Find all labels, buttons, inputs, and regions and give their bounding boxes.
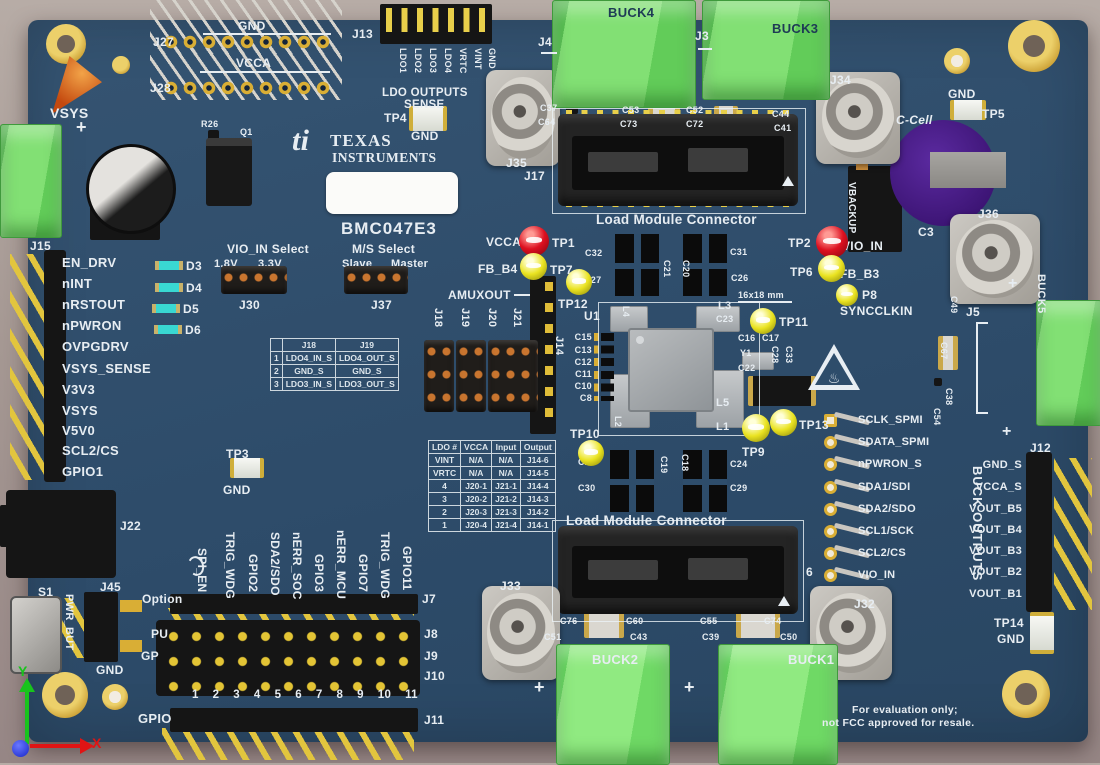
axes-origin-dot (12, 740, 29, 757)
pin-number: 10 (378, 690, 391, 704)
silk-j45-gnd: GND (96, 664, 124, 676)
gpio-signal: TRIG_WDG (379, 532, 391, 599)
j15-signal: nPWRON (62, 319, 122, 332)
table-header: LDO # (429, 441, 461, 454)
tp-label: nPWRON_S (858, 458, 922, 470)
silk-buck4: BUCK4 (608, 6, 654, 19)
j20-j21-header (488, 340, 538, 412)
silk-c54: C54 (932, 408, 941, 425)
silk-c72: C72 (686, 120, 703, 129)
silk-c44: C44 (772, 110, 789, 119)
tp10-test-point (578, 440, 604, 466)
silk-pwr-but: PWR_BUT (63, 594, 74, 651)
silk-fb-b3: FB_B3 (840, 268, 880, 280)
silk-c49: C49 (949, 296, 958, 313)
table-header: J18 (282, 339, 335, 352)
silk-c50: C50 (780, 633, 797, 642)
silk-c17: C17 (762, 334, 779, 343)
tp12-test-point (566, 269, 592, 295)
j18-header (424, 340, 454, 412)
coax-rings (956, 220, 1033, 297)
silk-buck2: BUCK2 (592, 653, 638, 666)
silk-c43: C43 (630, 633, 647, 642)
j45-pad (120, 640, 142, 652)
ms-select-title: M/S Select (352, 243, 415, 255)
silk-c11: C11 (570, 370, 592, 379)
silk-j4: J4 (538, 36, 552, 48)
silk-tp3-gnd: GND (223, 484, 251, 496)
silk-j9: J9 (424, 650, 438, 662)
silk-c41: C41 (774, 124, 791, 133)
board-id: BMC047E3 (341, 220, 437, 237)
tp1-test-point (519, 226, 549, 256)
table-cell: 4 (429, 480, 461, 493)
silk-c51: C51 (544, 633, 561, 642)
ti-logo-icon: ti (292, 126, 309, 156)
silk-c76: C76 (560, 617, 577, 626)
table-header: VCCA (461, 441, 492, 454)
pin1-triangle (778, 596, 790, 606)
silk-c12: C12 (570, 358, 592, 367)
x-axis-line (30, 744, 82, 748)
silk-c24: C24 (730, 460, 747, 469)
silk-j6: 6 (806, 566, 813, 578)
silk-tp9: TP9 (742, 446, 765, 458)
mount-hole-bottom-right (1002, 670, 1050, 718)
j13-pin-label: VINT (473, 48, 482, 70)
silk-j14: J14 (553, 336, 564, 355)
j13-header-pins (386, 8, 486, 32)
silk-c53: C53 (622, 106, 639, 115)
silk-c52: C52 (686, 106, 703, 115)
silk-load-module-bottom: Load Module Connector (566, 514, 727, 528)
p8-test-point (836, 284, 858, 306)
silk-plus: + (76, 118, 87, 136)
silk-line (203, 33, 331, 35)
silk-gpio: GPIO (138, 712, 172, 725)
silk-j19: J19 (459, 308, 470, 327)
gpio-signal: SPI_EN (196, 548, 208, 593)
j12-pin-label: VOUT_B2 (969, 567, 1022, 578)
silk-j17: J17 (524, 170, 545, 182)
fiducial-bottom-left (102, 684, 128, 710)
j15-signal: V3V3 (62, 383, 95, 396)
table-cell: N/A (461, 467, 492, 480)
j28-pads (162, 76, 332, 100)
silk-j34: J34 (830, 74, 851, 86)
j15-signal: nRSTOUT (62, 298, 125, 311)
silk-c74: C74 (764, 617, 781, 626)
y-axis-label: Y (18, 664, 28, 678)
silk-c67: C67 (939, 342, 948, 359)
silk-plus: + (1008, 276, 1018, 292)
silk-line (514, 294, 530, 296)
tp3-test-pad (230, 458, 264, 478)
pin-number: 3 (233, 690, 240, 704)
silk-line (200, 71, 330, 73)
table-cell: LDO4_IN_S (282, 352, 335, 365)
silk-c32: C32 (585, 249, 602, 258)
buck5-terminal (1036, 300, 1100, 426)
silk-plus: + (1002, 424, 1012, 440)
table-header: Input (492, 441, 521, 454)
silk-tp11: TP11 (779, 316, 808, 328)
table-cell: VRTC (429, 467, 461, 480)
silk-j22: J22 (120, 520, 141, 532)
silk-c13: C13 (570, 346, 592, 355)
y-axis-arrowhead (19, 678, 35, 692)
tp2-test-point (816, 226, 848, 258)
silk-j27: J27 (153, 36, 174, 48)
silk-j32: J32 (854, 598, 875, 610)
led-d5 (152, 304, 180, 313)
table-header (271, 339, 283, 352)
silk-r26: R26 (201, 120, 218, 129)
silk-l2: L2 (613, 416, 622, 427)
silk-c15: C15 (570, 333, 592, 342)
tp-label: SCLK_SPMI (858, 414, 923, 426)
smd (934, 378, 942, 386)
table-header: J19 (336, 339, 399, 352)
silk-c16: C16 (738, 334, 755, 343)
table-cell: N/A (492, 454, 521, 467)
pin-number: 11 (405, 690, 418, 704)
silk-vbackup: VBACKUP (846, 182, 856, 234)
silk-l5: L5 (716, 398, 729, 409)
silk-c26: C26 (731, 274, 748, 283)
silk-fb-b4: FB_B4 (478, 263, 518, 275)
tp-label: SCL2/CS (858, 547, 906, 559)
j15-pins (10, 254, 44, 480)
battery-clip (930, 152, 1006, 188)
table-cell: GND_S (336, 365, 399, 378)
table-cell: 3 (429, 493, 461, 506)
table-cell: J20-3 (461, 506, 492, 519)
silk-gnd-tp5: GND (948, 88, 976, 100)
silk-j7: J7 (422, 593, 436, 605)
silk-j10: J10 (424, 670, 445, 682)
table-cell: J14-5 (520, 467, 555, 480)
table-cell: 1 (271, 352, 283, 365)
silk-c21: C21 (662, 260, 671, 277)
table-cell: J20-4 (461, 519, 492, 532)
silk-c-cell: C-Cell (896, 114, 932, 126)
table-cell: J14-2 (520, 506, 555, 519)
gpio-signal: SDA2/SDO (269, 532, 281, 596)
j15-signal: GPIO1 (62, 465, 103, 478)
coax-rings (822, 78, 894, 157)
j45-header (84, 592, 118, 662)
j12-pin-label: VCCA_S (976, 482, 1022, 493)
j5-bracket-tick (976, 412, 988, 414)
cap-cluster (615, 234, 659, 296)
vsys-terminal (0, 124, 62, 238)
table-cell: VINT (429, 454, 461, 467)
j12-pin-label: VOUT_B5 (969, 504, 1022, 515)
led-label: D6 (185, 324, 201, 336)
j12-pin-label: VOUT_B1 (969, 589, 1022, 600)
table-cell: N/A (461, 454, 492, 467)
bulk-electrolytic-cap (86, 144, 176, 234)
silk-tp4-gnd: GND (411, 130, 439, 142)
silk-j28: J28 (150, 82, 171, 94)
silk-tp13: TP13 (799, 419, 829, 431)
silk-l3: L3 (718, 301, 731, 312)
j14-pads (545, 282, 553, 428)
silk-gnd-top: GND (238, 20, 266, 32)
j5-bracket-tick (976, 322, 988, 324)
silk-q1: Q1 (240, 128, 253, 137)
tp14-test-pad (1030, 612, 1054, 654)
table-cell: J20-1 (461, 480, 492, 493)
gpio-signal: GPIO7 (357, 554, 369, 592)
pin-number: 4 (254, 690, 261, 704)
pin-number-row: 1 2 3 4 5 6 7 8 9 10 11 (192, 690, 418, 704)
silk-c23: C23 (716, 315, 733, 324)
silk-plus: + (684, 678, 695, 696)
led-label: D3 (186, 260, 202, 272)
tp7-test-point (520, 253, 547, 280)
table-cell: LDO3_OUT_S (336, 378, 399, 391)
table-cell: J14-3 (520, 493, 555, 506)
j13-pin-label: GND (487, 48, 496, 69)
j30-jumper (221, 266, 287, 294)
table-cell: 3 (271, 378, 283, 391)
j12-header (1026, 452, 1052, 612)
table-cell: J21-1 (492, 480, 521, 493)
cap-cluster (610, 450, 654, 512)
table-cell: N/A (492, 467, 521, 480)
buck3-terminal (702, 0, 830, 100)
silk-tp6: TP6 (790, 266, 813, 278)
j11-pins (162, 728, 414, 760)
j36-coax-connector (950, 214, 1040, 304)
silk-c29: C29 (730, 484, 747, 493)
silk-c64: C64 (538, 118, 555, 127)
silk-c3: C3 (918, 226, 934, 238)
silk-j30: J30 (239, 299, 260, 311)
silk-c20: C20 (681, 260, 690, 277)
silk-syncclkin: SYNCCLKIN (840, 305, 913, 317)
led-label: D5 (183, 303, 199, 315)
silk-c8: C8 (572, 394, 592, 403)
silk-c18: C18 (680, 454, 689, 471)
silk-pu: PU (151, 628, 168, 640)
j15-signal: OVPGDRV (62, 340, 129, 353)
silk-s1: S1 (38, 586, 53, 598)
table-header: Output (520, 441, 555, 454)
silk-buck1: BUCK1 (788, 653, 834, 666)
silk-ldo-outputs: LDO OUTPUTS (382, 88, 468, 100)
silk-tp10: TP10 (570, 428, 600, 440)
j13-pin-label: LDO1 (398, 48, 407, 73)
silk-j20: J20 (486, 308, 497, 327)
pin-number: 1 (192, 690, 199, 704)
silk-buck3: BUCK3 (772, 22, 818, 35)
table-cell: J21-3 (492, 506, 521, 519)
hole-bore (951, 55, 962, 66)
table-cell: J21-4 (492, 519, 521, 532)
silk-tp14: TP14 (994, 617, 1024, 629)
pin-number: 2 (213, 690, 220, 704)
pin-number: 5 (275, 690, 282, 704)
silk-sense: SENSE (404, 100, 445, 112)
silk-j11: J11 (424, 714, 444, 726)
silk-l4: L4 (621, 306, 630, 317)
fiducial-top-left (112, 56, 130, 74)
silk-l1: L1 (716, 422, 729, 433)
pin-number: 6 (295, 690, 302, 704)
tp-label: SDA2/SDO (858, 503, 916, 515)
silk-c38: C38 (944, 388, 953, 405)
silk-vio-in-tp2: VIO_IN (842, 240, 883, 252)
silk-c55: C55 (700, 617, 717, 626)
pin-number: 8 (336, 690, 343, 704)
silk-j12: J12 (1030, 442, 1051, 454)
silk-c33: C33 (784, 346, 793, 363)
hole-bore (1015, 683, 1036, 704)
pin-number: 7 (316, 690, 323, 704)
j5-bracket (976, 322, 978, 414)
gpio-signal: GPIO2 (247, 554, 259, 592)
silk-tp5: TP5 (982, 108, 1005, 120)
ldo-io-table: LDO #VCCAInputOutput VINTN/AN/AJ14-6 VRT… (428, 440, 556, 532)
hole-bore (1023, 35, 1046, 58)
hole-bore (57, 35, 75, 53)
silk-vcca-tp1: VCCA (486, 236, 521, 248)
silk-plus: + (534, 678, 545, 696)
silk-j5: J5 (966, 306, 980, 318)
pin-number: 9 (357, 690, 364, 704)
silk-j45: J45 (100, 581, 121, 593)
table-cell: 1 (429, 519, 461, 532)
eval-note-line1: For evaluation only; (852, 705, 958, 716)
silk-c28: C28 (770, 346, 779, 363)
j8-j9-j10-header-block (156, 620, 420, 696)
silk-j18: J18 (432, 308, 443, 327)
fiducial-top-right (944, 48, 970, 74)
silk-option: Option (142, 593, 182, 605)
j13-pin-label: LDO3 (428, 48, 437, 73)
vio-select-title: VIO_IN Select (227, 243, 309, 255)
silk-tp3: TP3 (226, 448, 249, 460)
silk-c22: C22 (738, 364, 755, 373)
j37-jumper (344, 266, 408, 294)
tp-label: SDA1/SDI (858, 481, 910, 493)
brand-line1: TEXAS (330, 132, 392, 149)
tp9-test-point (742, 414, 770, 442)
silk-c73: C73 (620, 120, 637, 129)
j15-signal: VSYS_SENSE (62, 362, 151, 375)
silk-gp: GP (141, 650, 159, 662)
silk-load-module-top: Load Module Connector (596, 213, 757, 227)
j13-pin-label: VRTC (458, 48, 467, 74)
q1-transistor (206, 138, 252, 206)
mount-hole-top-right (1008, 20, 1060, 72)
table-cell: LDO3_IN_S (282, 378, 335, 391)
silk-c60: C60 (626, 617, 643, 626)
silk-j33: J33 (500, 580, 521, 592)
hole-bore (109, 691, 120, 702)
silk-c39: C39 (702, 633, 719, 642)
j17-silk-outline (552, 108, 806, 214)
silk-line (738, 301, 792, 303)
pin1-mark (541, 52, 557, 54)
tp-label: SCL1/SCK (858, 525, 914, 537)
tp-label: SDATA_SPMI (858, 436, 929, 448)
brand-line2: INSTRUMENTS (332, 151, 437, 165)
led-d3 (155, 261, 183, 270)
silk-c30: C30 (578, 484, 595, 493)
gpio-signal: TRIG_WDG (224, 532, 236, 599)
gpio-signal: GPIO11 (401, 546, 413, 591)
j12-pins (1054, 458, 1092, 610)
tp6-test-point (818, 255, 845, 282)
silk-j35: J35 (506, 157, 527, 169)
silk-tp4: TP4 (384, 112, 407, 124)
silk-u1: U1 (584, 310, 600, 322)
silk-dimension: 16x18 mm (738, 291, 784, 300)
silk-j37: J37 (371, 299, 392, 311)
x-axis-label: X (92, 736, 102, 750)
table-cell: LDO4_OUT_S (336, 352, 399, 365)
table-cell: J20-2 (461, 493, 492, 506)
j15-signal: SCL2/CS (62, 444, 119, 457)
table-cell: J14-1 (520, 519, 555, 532)
led-d6 (154, 325, 182, 334)
silk-y1: Y1 (740, 349, 752, 358)
j13-pin-label: LDO4 (443, 48, 452, 73)
j45-pad (120, 600, 142, 612)
j22-connector (6, 490, 116, 578)
silk-c19: C19 (659, 456, 668, 473)
silk-j21: J21 (511, 308, 522, 327)
j15-signal: VSYS (62, 404, 98, 417)
gpio-signal: nERR_MCU (335, 530, 347, 599)
silk-tp2: TP2 (788, 237, 811, 249)
silk-buck5: BUCK5 (1035, 274, 1046, 313)
j15-signal: nINT (62, 277, 92, 290)
table-cell: 2 (429, 506, 461, 519)
silk-j36: J36 (978, 208, 999, 220)
j18-j19-pinout-table: J18 J19 1LDO4_IN_SLDO4_OUT_S 2GND_SGND_S… (270, 338, 399, 391)
j11-header (170, 708, 418, 732)
table-cell: 2 (271, 365, 283, 378)
mount-hole-bottom-left (42, 672, 88, 718)
tp5-test-pad (950, 100, 986, 120)
blank-label-sticker (326, 172, 458, 214)
table-cell: J21-2 (492, 493, 521, 506)
hole-bore (55, 685, 75, 705)
led-label: D4 (186, 282, 202, 294)
gpio-signal: GPIO3 (313, 554, 325, 592)
j15-signal: EN_DRV (62, 256, 116, 269)
led-d4 (155, 283, 183, 292)
silk-c31: C31 (730, 248, 747, 257)
silk-p8: P8 (862, 289, 877, 301)
silk-j13: J13 (352, 28, 373, 40)
j12-pin-label: VOUT_B3 (969, 546, 1022, 557)
j6-silk-outline (552, 520, 804, 622)
tp-label: VIO_IN (858, 569, 895, 581)
silk-c10: C10 (570, 382, 592, 391)
silk-vcca-top: VCCA (236, 57, 271, 69)
j12-pin-label: VOUT_B4 (969, 525, 1022, 536)
j19-header (456, 340, 486, 412)
eval-note-line2: not FCC approved for resale. (822, 718, 975, 729)
j13-pin-label: LDO2 (413, 48, 422, 73)
pin1-mark (698, 48, 712, 50)
